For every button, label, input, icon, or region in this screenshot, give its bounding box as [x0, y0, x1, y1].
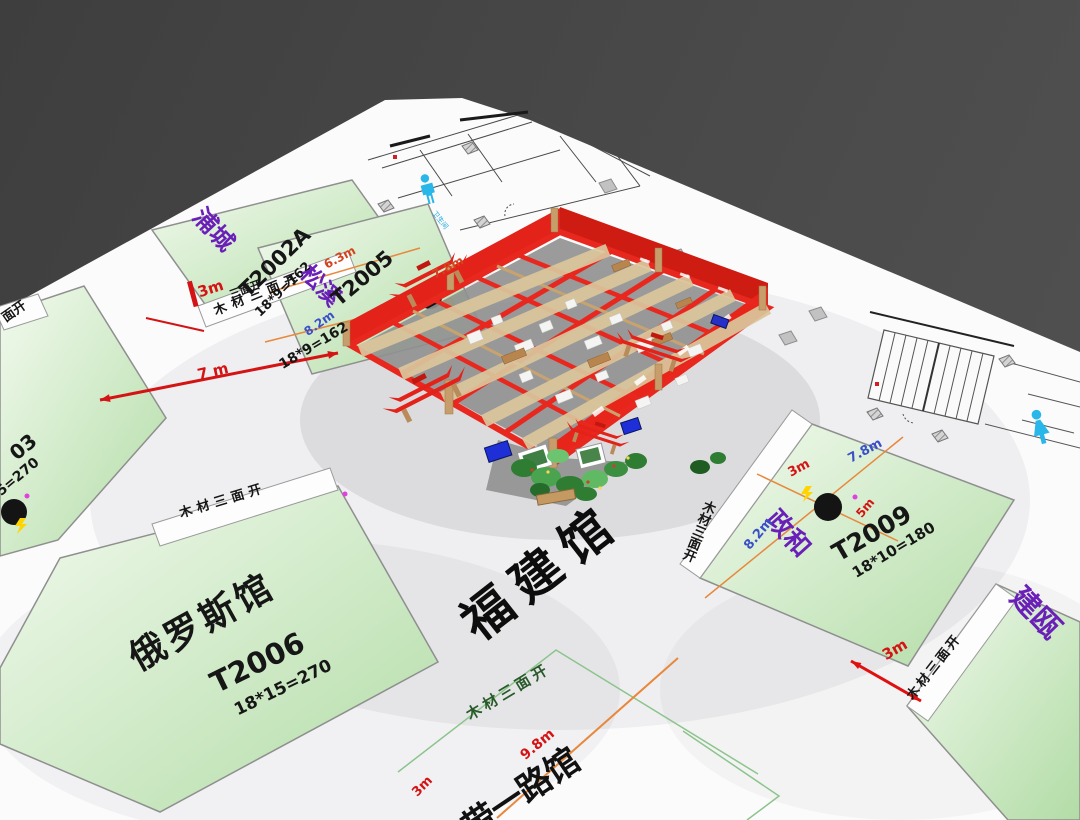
exhibition-floor-render: 浦城 T2002A 18*9=162 木材三面开 3m 7 m 松溪 T2005…: [0, 0, 1080, 820]
pillar-t2009: [814, 493, 842, 521]
